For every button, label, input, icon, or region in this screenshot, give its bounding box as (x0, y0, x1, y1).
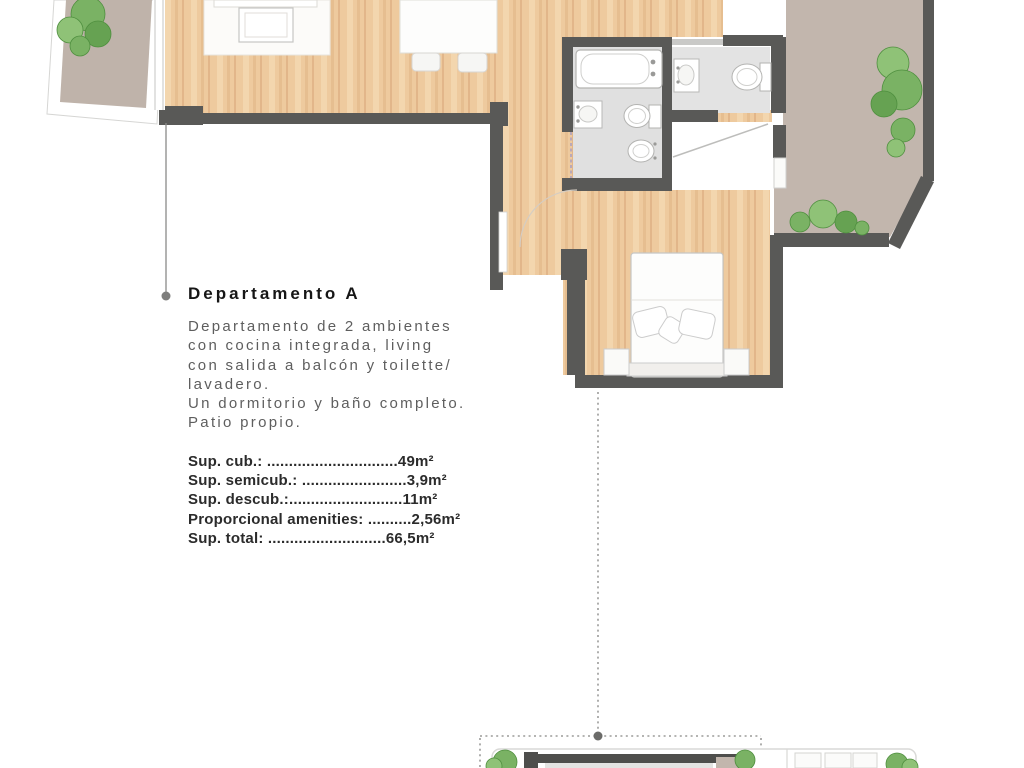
measurement-row: Sup. semicub.: ........................3… (188, 471, 518, 490)
chair (412, 53, 440, 71)
measurement-label: Sup. total: (188, 530, 264, 547)
measurement-row: Sup. descub.:..........................1… (188, 490, 518, 509)
location-connector (480, 392, 761, 768)
description-line: con cocina integrada, living (188, 336, 518, 355)
measurement-label: Proporcional amenities: (188, 511, 363, 528)
description-line: Departamento de 2 ambientes (188, 317, 518, 336)
measurement-label: Sup. semicub.: (188, 472, 298, 489)
dot-leader: .......................... (289, 491, 403, 508)
surface-measurements: Sup. cub.: .............................… (188, 452, 518, 548)
toilette-toilet (732, 63, 771, 91)
dining-table (400, 0, 497, 53)
measurement-value: 3,9m² (407, 472, 447, 489)
plant-icon (735, 750, 755, 768)
floorplan-page: { "document": { "unit": { "title": "Depa… (0, 0, 1024, 768)
laundry-area (672, 122, 772, 158)
entry-door-leaf (499, 212, 507, 272)
unit-title: Departamento A (188, 284, 518, 304)
nightstand (724, 349, 749, 375)
shaft (723, 0, 782, 37)
measurement-label: Sup. cub.: (188, 453, 263, 470)
ground-floor-fragment (486, 749, 918, 768)
patio-window (774, 158, 786, 188)
description-line: lavadero. (188, 375, 518, 394)
measurement-value: 11m² (403, 491, 438, 508)
bathtub (576, 50, 662, 88)
measurement-value: 49m² (398, 453, 434, 470)
measurement-row: Sup. cub.: .............................… (188, 452, 518, 471)
measurement-row: Proporcional amenities: ..........2,56m² (188, 510, 518, 529)
nightstand (604, 349, 629, 375)
toilette-door (672, 39, 723, 45)
sofa (214, 0, 317, 7)
dot-leader: ........................... (264, 530, 386, 547)
measurement-value: 2,56m² (412, 511, 461, 528)
description-line: Patio propio. (188, 413, 518, 432)
leader-line (162, 123, 171, 301)
dot-leader: .............................. (263, 453, 398, 470)
description-line: con salida a balcón y toilette/ (188, 356, 518, 375)
description-line: Un dormitorio y baño completo. (188, 394, 518, 413)
plant-icon (486, 750, 517, 768)
dot-leader: .......... (363, 511, 411, 528)
connector-dot (594, 732, 603, 741)
unit-description: Departamento de 2 ambientes con cocina i… (188, 317, 518, 433)
headboard (627, 363, 727, 376)
toilette-vanity (674, 59, 699, 92)
measurement-row: Sup. total: ...........................6… (188, 529, 518, 548)
bath-vanity (574, 101, 602, 128)
chair (458, 53, 487, 72)
measurement-value: 66,5m² (386, 530, 435, 547)
living-rug (204, 0, 330, 55)
toilet (624, 105, 661, 129)
dot-leader: ........................ (298, 472, 407, 489)
unit-info-block: Departamento A Departamento de 2 ambient… (188, 284, 518, 548)
measurement-label: Sup. descub.: (188, 491, 289, 508)
